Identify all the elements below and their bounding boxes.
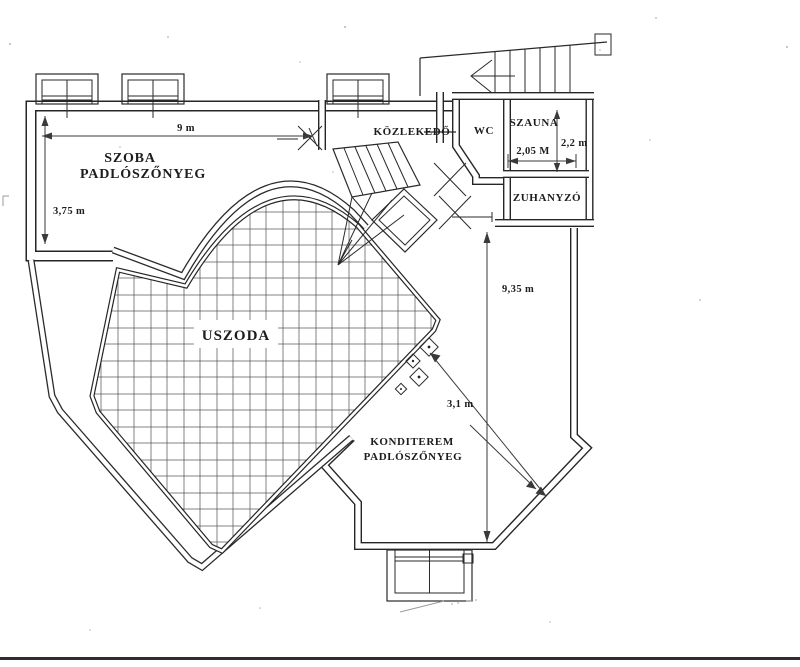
dim-szoba-width: 9 m xyxy=(42,123,317,146)
margin-mark xyxy=(3,196,9,206)
wall-wc xyxy=(456,100,503,181)
dim-label-31: 3,1 m xyxy=(447,399,474,410)
stair-landing xyxy=(372,189,437,252)
door-x-vestibule-2 xyxy=(439,196,471,229)
door-zuhanyzo xyxy=(452,212,492,222)
floor-plan-svg: USZODA xyxy=(0,0,800,667)
scan-edge-line xyxy=(0,657,800,660)
room-label-szauna: SZAUNA xyxy=(510,117,559,129)
dim-label-205: 2,05 M xyxy=(516,146,549,157)
room-label-zuhanyzo: ZUHANYZÓ xyxy=(513,192,581,204)
door-x-vestibule-1 xyxy=(434,163,466,196)
room-label-kozlekedo: KÖZLEKEDŐ xyxy=(374,125,451,138)
room-label-uszoda: USZODA xyxy=(202,328,271,344)
dim-szauna-width: 2,05 M xyxy=(508,146,576,168)
window-bottom xyxy=(387,550,473,601)
room-label-wc: WC xyxy=(474,125,494,137)
dim-konditerem-height: 9,35 m xyxy=(484,232,535,542)
scanned-floorplan-page: USZODA xyxy=(0,0,800,667)
dim-label-22: 2,2 m xyxy=(561,138,588,149)
dim-label-375: 3,75 m xyxy=(53,206,85,217)
dim-label-9m: 9 m xyxy=(177,123,195,134)
staircase-middle xyxy=(333,142,437,265)
dim-pool-to-corner: 3,1 m xyxy=(430,353,546,496)
pool: USZODA xyxy=(60,160,460,570)
room-label-szoba-2: PADLÓSZŐNYEG xyxy=(80,165,206,182)
room-label-szoba-1: SZOBA xyxy=(104,151,156,166)
dim-label-935: 9,35 m xyxy=(502,284,534,295)
room-label-konditerem-2: PADLÓSZŐNYEG xyxy=(364,451,463,463)
room-label-konditerem-1: KONDITEREM xyxy=(370,436,454,448)
roof-notch xyxy=(595,34,611,55)
staircase-upper xyxy=(420,34,611,96)
